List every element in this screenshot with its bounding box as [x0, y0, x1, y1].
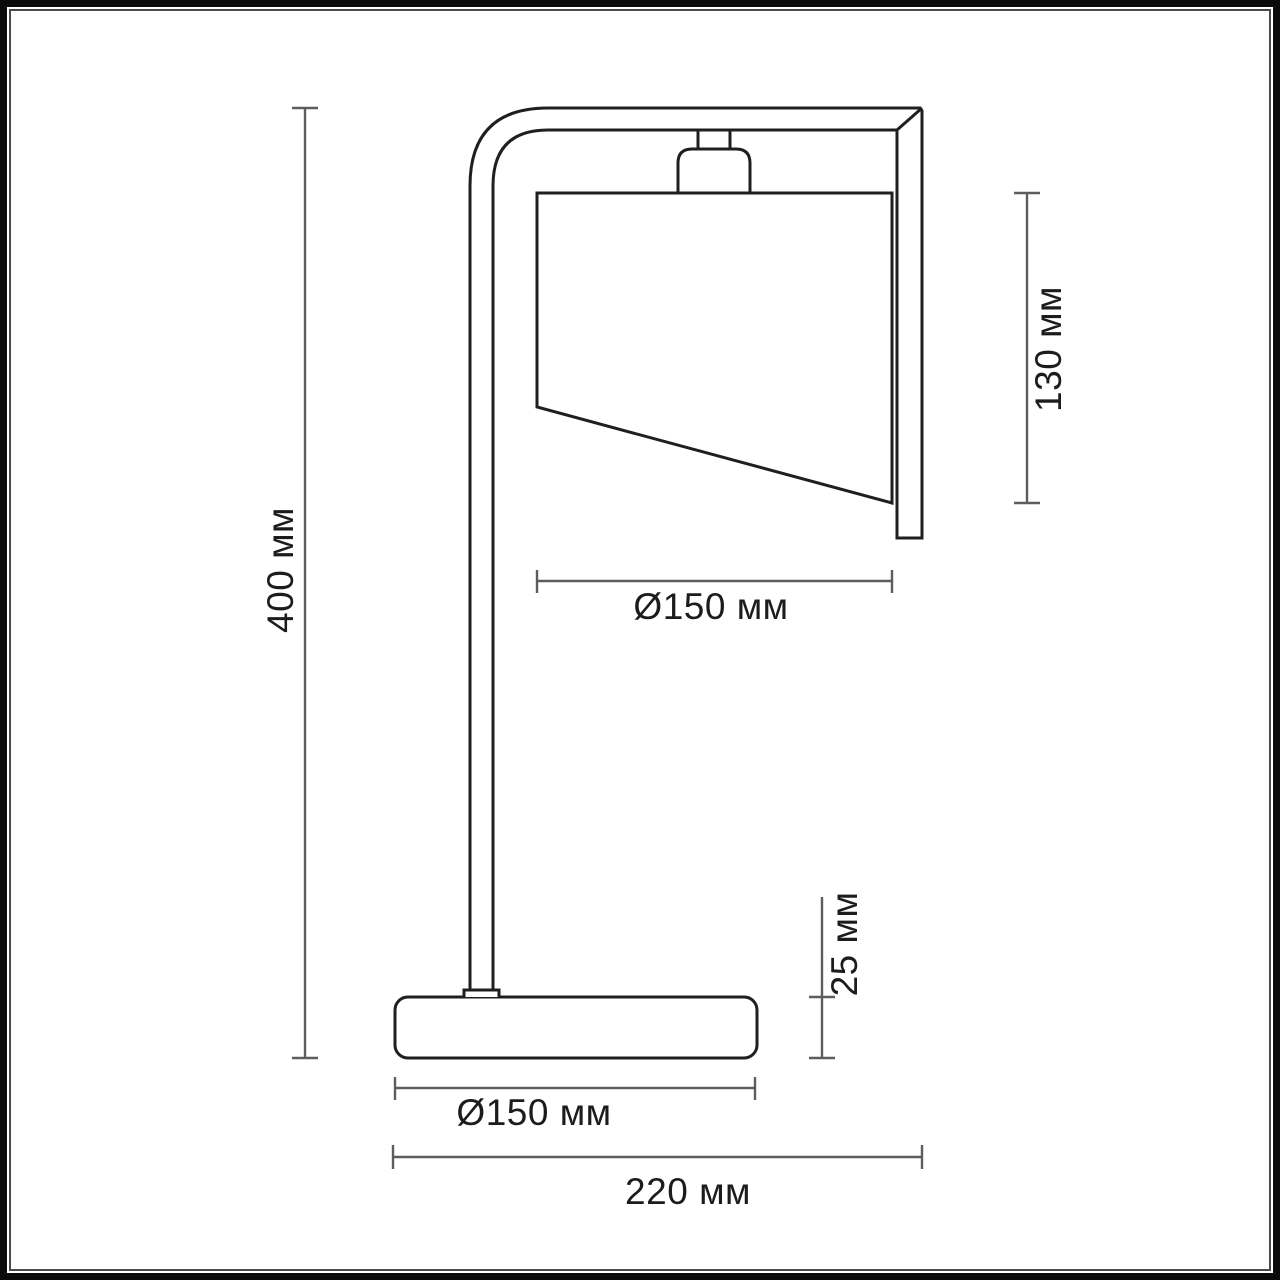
dim-overall-depth-label: 220 мм — [625, 1171, 751, 1213]
lamp-base — [395, 997, 757, 1058]
dim-base-height-label: 25 мм — [824, 892, 866, 997]
drawing-artwork — [0, 0, 1280, 1280]
lamp-shade — [537, 193, 892, 503]
dim-shade-diameter-label: Ø150 мм — [633, 586, 788, 628]
lamp-base-flange — [464, 990, 499, 997]
lamp-socket-neck — [698, 131, 730, 150]
dim-overall-height-label: 400 мм — [260, 507, 302, 633]
lamp-dimension-drawing: 400 мм 130 мм Ø150 мм 25 мм Ø150 мм 220 … — [0, 0, 1280, 1280]
lamp-socket — [678, 149, 750, 194]
dim-base-diameter-label: Ø150 мм — [456, 1092, 611, 1134]
dim-shade-height-label: 130 мм — [1028, 286, 1070, 412]
dim-overall-depth-line — [393, 1145, 922, 1169]
